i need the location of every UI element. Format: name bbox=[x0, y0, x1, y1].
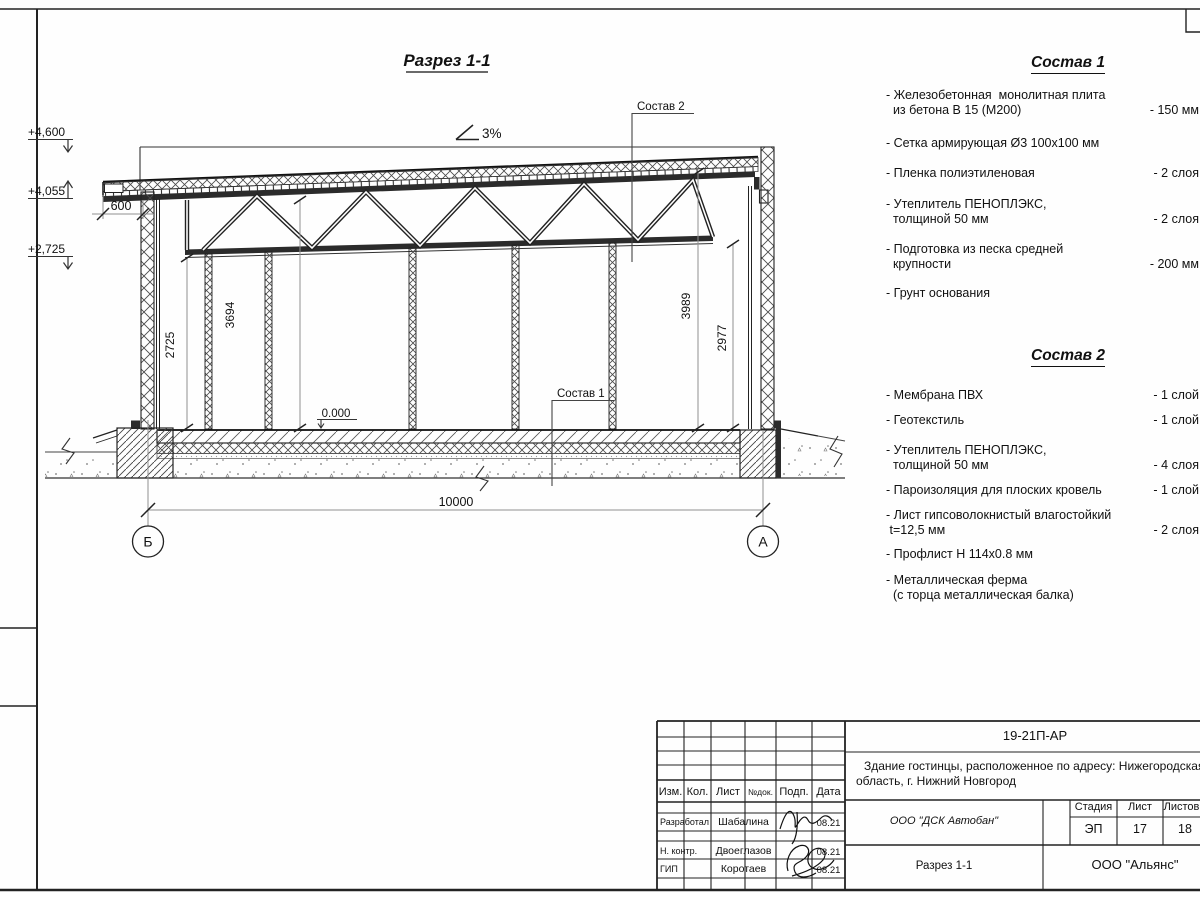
dim-3989: 3989 bbox=[679, 292, 693, 319]
list-item: - Лист гипсоволокнистый влагостойкий t=1… bbox=[886, 508, 1199, 537]
right-wall bbox=[749, 147, 782, 429]
list-item: - Грунт основания bbox=[886, 286, 1199, 301]
material-label: - Пароизоляция для плоских кровель bbox=[886, 483, 1102, 498]
material-value: - 1 слой bbox=[1153, 388, 1199, 403]
elevation-marks: +4,600 +4,055 +2,725 bbox=[28, 125, 73, 269]
building-section: 2725 3694 3989 2977 10000 600 Б А +4,600… bbox=[28, 51, 845, 557]
row-date-razrabotal: 08.21 bbox=[812, 817, 845, 831]
col-header-kol: Кол. bbox=[684, 783, 711, 802]
column bbox=[609, 243, 616, 429]
material-label: - Лист гипсоволокнистый влагостойкий t=1… bbox=[886, 508, 1111, 537]
company-name: ООО "Альянс" bbox=[1070, 857, 1200, 872]
dim-600: 600 bbox=[111, 199, 132, 213]
right-foundation bbox=[740, 430, 776, 478]
floor-slab bbox=[157, 430, 740, 478]
column bbox=[265, 252, 272, 429]
zero-level-mark: 0.000 bbox=[317, 408, 357, 428]
dim-2977: 2977 bbox=[715, 324, 729, 351]
floor-screed bbox=[157, 430, 740, 443]
elev-4600: +4,600 bbox=[28, 125, 65, 139]
sostav1-title: Состав 1 bbox=[1031, 54, 1105, 74]
floor-insulation bbox=[157, 443, 740, 454]
material-value: - 2 слоя bbox=[1154, 166, 1199, 181]
wall-base-plate bbox=[774, 421, 781, 429]
corner-box bbox=[1186, 9, 1200, 32]
list-item: - Мембрана ПВХ- 1 слой bbox=[886, 388, 1199, 403]
contractor-org: ООО "ДСК Автобан" bbox=[845, 815, 1043, 827]
row-role-nkontr: Н. контр. bbox=[660, 846, 697, 856]
slope-label: 3% bbox=[482, 126, 502, 141]
material-label: - Сетка армирующая Ø3 100х100 мм bbox=[886, 136, 1099, 151]
list-item: - Подготовка из песка средней крупности-… bbox=[886, 242, 1199, 271]
elev-arrow-down bbox=[64, 257, 73, 270]
doc-number: 19-21П-АР bbox=[845, 728, 1200, 743]
project-name-line2: область, г. Нижний Новгород bbox=[850, 774, 1022, 788]
material-label: - Пленка полиэтиленовая bbox=[886, 166, 1035, 181]
list-item: - Пленка полиэтиленовая- 2 слоя bbox=[886, 166, 1199, 181]
sheet-label: Лист bbox=[1117, 801, 1163, 813]
sheets-label: Листов bbox=[1163, 801, 1200, 813]
material-value: - 2 слоя bbox=[1154, 212, 1199, 227]
zero-level-text: 0.000 bbox=[322, 408, 351, 420]
axis-label-a: А bbox=[758, 534, 768, 550]
col-header-ndok: №док. bbox=[745, 783, 776, 802]
sheet-value: 17 bbox=[1117, 822, 1163, 836]
left-wall bbox=[131, 192, 160, 429]
elev-arrow-down bbox=[64, 140, 73, 153]
material-label: - Утеплитель ПЕНОПЛЭКС, толщиной 50 мм bbox=[886, 197, 1046, 226]
material-label: - Железобетонная монолитная плита из бет… bbox=[886, 88, 1105, 117]
elev-2725: +2,725 bbox=[28, 242, 65, 256]
stage-value: ЭП bbox=[1070, 822, 1117, 836]
column bbox=[205, 254, 212, 429]
axis-bubbles: Б А bbox=[133, 526, 779, 557]
material-label: - Мембрана ПВХ bbox=[886, 388, 983, 403]
list-item: - Пароизоляция для плоских кровель- 1 сл… bbox=[886, 483, 1199, 498]
list-item: - Геотекстиль- 1 слой bbox=[886, 413, 1199, 428]
col-header-data: Дата bbox=[812, 783, 845, 802]
material-label: - Профлист Н 114х0.8 мм bbox=[886, 547, 1033, 562]
material-value: - 150 мм bbox=[1150, 103, 1199, 118]
material-value: - 4 слоя bbox=[1154, 458, 1199, 473]
col-header-list: Лист bbox=[711, 783, 745, 802]
dim-10000: 10000 bbox=[439, 495, 474, 509]
row-role-razrabotal: Разработал bbox=[660, 817, 709, 827]
column bbox=[409, 248, 416, 429]
column bbox=[512, 245, 519, 429]
sostav2-title: Состав 2 bbox=[1031, 347, 1105, 367]
sheet-title: Разрез 1-1 bbox=[845, 860, 1043, 872]
row-date-gip: 08.21 bbox=[812, 864, 845, 878]
view-title-text: Разрез 1-1 bbox=[403, 51, 490, 70]
list-item: - Железобетонная монолитная плита из бет… bbox=[886, 88, 1199, 117]
list-item: - Утеплитель ПЕНОПЛЭКС, толщиной 50 мм- … bbox=[886, 197, 1199, 226]
chord-end-plate bbox=[754, 177, 760, 190]
list-item: - Сетка армирующая Ø3 100х100 мм bbox=[886, 136, 1199, 151]
list-item: - Профлист Н 114х0.8 мм bbox=[886, 547, 1199, 562]
left-foundation bbox=[117, 428, 173, 478]
list-item: - Утеплитель ПЕНОПЛЭКС, толщиной 50 мм- … bbox=[886, 443, 1199, 472]
material-value: - 1 слой bbox=[1153, 483, 1199, 498]
material-label: - Металлическая ферма (с торца металличе… bbox=[886, 573, 1074, 602]
drawing-sheet: 2725 3694 3989 2977 10000 600 Б А +4,600… bbox=[0, 0, 1200, 900]
row-name-nkontr: Двоеглазов bbox=[711, 844, 776, 859]
axis-label-b: Б bbox=[143, 534, 152, 550]
slope-mark: 3% bbox=[456, 125, 502, 141]
foundation-edge bbox=[776, 428, 781, 478]
row-name-razrabotal: Шабалина bbox=[711, 815, 776, 830]
list-item: - Металлическая ферма (с торца металличе… bbox=[886, 573, 1199, 602]
dim-2725: 2725 bbox=[163, 331, 177, 358]
material-value: - 1 слой bbox=[1153, 413, 1199, 428]
col-header-podp: Подп. bbox=[776, 783, 812, 802]
material-label: - Утеплитель ПЕНОПЛЭКС, толщиной 50 мм bbox=[886, 443, 1046, 472]
eave-detail-box bbox=[105, 184, 124, 193]
material-label: - Геотекстиль bbox=[886, 413, 964, 428]
interior-columns bbox=[205, 243, 616, 429]
material-value: - 2 слоя bbox=[1154, 523, 1199, 538]
elev-4055: +4,055 bbox=[28, 184, 65, 198]
callout-sostav1-label: Состав 1 bbox=[557, 388, 605, 400]
roof-package bbox=[103, 157, 768, 203]
row-name-gip: Коротаев bbox=[711, 862, 776, 877]
material-label: - Подготовка из песка средней крупности bbox=[886, 242, 1063, 271]
left-ground-fill bbox=[45, 453, 117, 477]
floor-film-layer bbox=[157, 454, 740, 459]
row-date-nkontr: 08.21 bbox=[812, 846, 845, 860]
sand-base bbox=[173, 459, 740, 479]
sheets-value: 18 bbox=[1163, 822, 1200, 836]
right-ground-fill bbox=[781, 438, 845, 476]
row-role-gip: ГИП bbox=[660, 864, 678, 874]
material-label: - Грунт основания bbox=[886, 286, 990, 301]
callout-sostav2-label: Состав 2 bbox=[637, 101, 685, 113]
stage-label: Стадия bbox=[1070, 801, 1117, 813]
material-value: - 200 мм bbox=[1150, 257, 1199, 272]
callouts: Состав 2 Состав 1 bbox=[552, 101, 694, 486]
project-name-line1: Здание гостинцы, расположенное по адресу… bbox=[864, 759, 1200, 773]
dim-3694: 3694 bbox=[223, 301, 237, 328]
grade-slope bbox=[781, 429, 818, 436]
view-title: Разрез 1-1 bbox=[403, 51, 490, 72]
col-header-izm: Изм. bbox=[657, 783, 684, 802]
